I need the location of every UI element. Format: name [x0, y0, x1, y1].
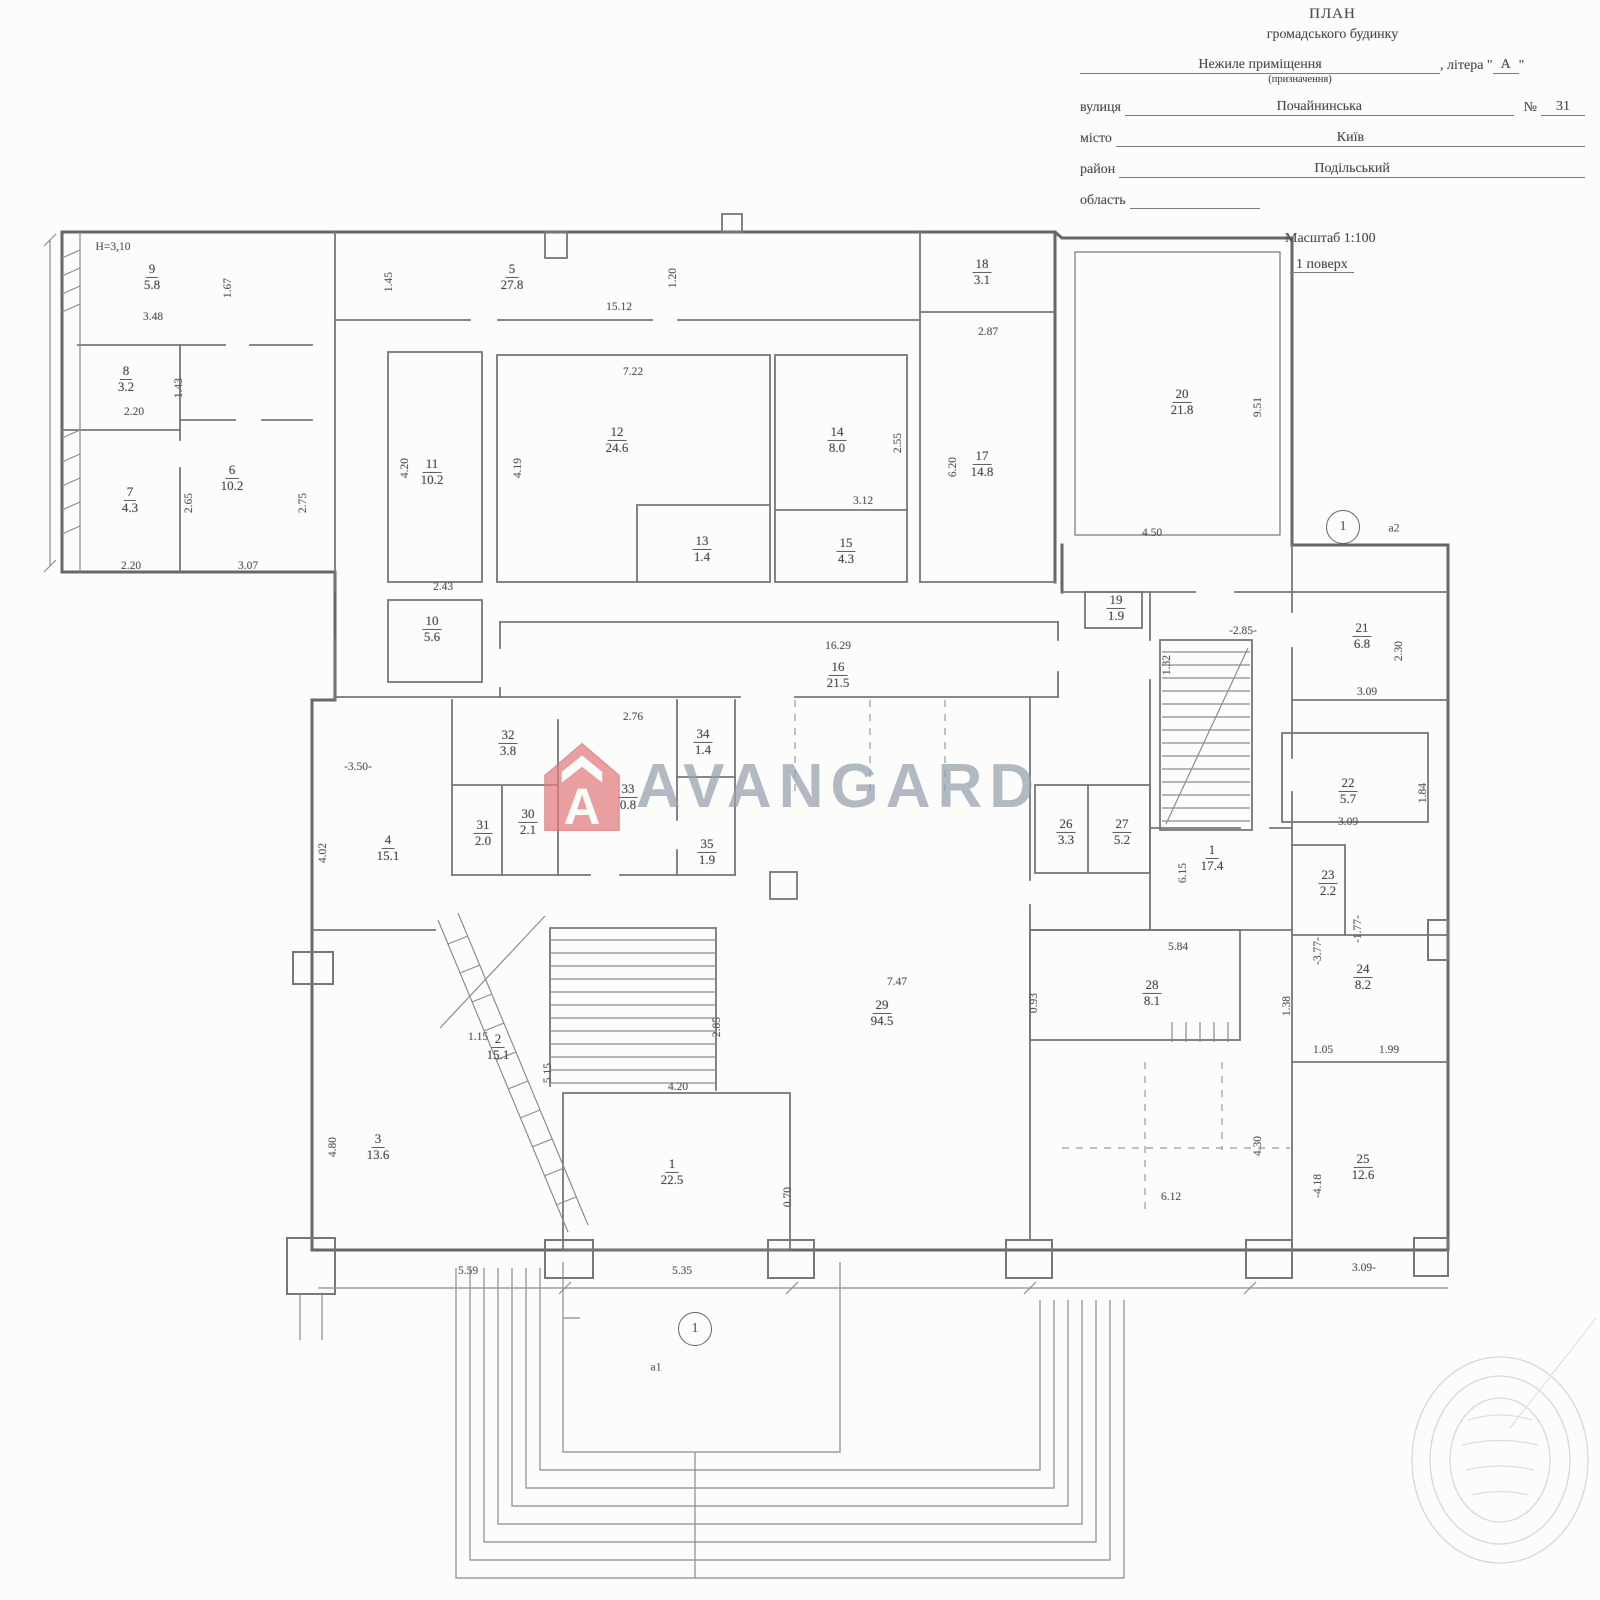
room-label: 1224.6: [606, 425, 629, 455]
dimension-label: 5.84: [1168, 941, 1188, 953]
room-label: 83.2: [118, 364, 134, 394]
number-label: №: [1514, 100, 1541, 116]
room-number: 19: [1107, 593, 1126, 609]
room-label: 117.4: [1201, 843, 1224, 873]
premise-row: Нежиле приміщення , літера " А ": [1080, 57, 1585, 74]
room-label: 2512.6: [1352, 1152, 1375, 1182]
dimension-label: -2.85-: [1229, 625, 1257, 637]
dimension-label: 2.43: [433, 581, 453, 593]
room-area: 0.8: [620, 798, 636, 813]
dimension-label: 6.12: [1161, 1191, 1181, 1203]
room-number: 7: [124, 485, 137, 501]
number-value: 31: [1541, 99, 1585, 116]
room-label: 1714.8: [971, 449, 994, 479]
room-label: 313.6: [367, 1132, 390, 1162]
dimension-label: 2.75: [297, 493, 309, 513]
region-value: [1130, 192, 1260, 209]
dimension-label: 5.15: [542, 1063, 554, 1083]
room-label: 248.2: [1354, 962, 1373, 992]
dimension-label: 1.84: [1417, 783, 1429, 803]
room-number: 17: [973, 449, 992, 465]
room-label: 148.0: [828, 425, 847, 455]
dimension-label: 3.07: [238, 560, 258, 572]
detail-lines: [44, 232, 1448, 1578]
street-value: Почайнинська: [1125, 99, 1514, 116]
room-label: 216.8: [1353, 621, 1372, 651]
room-number: 12: [608, 425, 627, 441]
room-area: 15.1: [487, 1048, 510, 1063]
dimension-label: 5.35: [672, 1265, 692, 1277]
room-label: 263.3: [1057, 817, 1076, 847]
room-label: 610.2: [221, 463, 244, 493]
dimension-label: 4.50: [1142, 527, 1162, 539]
room-number: 33: [619, 782, 638, 798]
room-area: 1.9: [1108, 609, 1124, 624]
room-number: 10: [423, 614, 442, 630]
outer-walls: [62, 232, 1448, 1250]
region-row: область: [1080, 192, 1585, 209]
room-area: 3.2: [118, 380, 134, 395]
room-area: 10.2: [221, 479, 244, 494]
room-area: 5.7: [1340, 792, 1356, 807]
room-area: 14.8: [971, 465, 994, 480]
street-label: вулиця: [1080, 100, 1125, 116]
dimension-label: 1.38: [1281, 996, 1293, 1016]
room-number: 28: [1143, 978, 1162, 994]
room-label: 1621.5: [827, 660, 850, 690]
room-area: 1.4: [694, 550, 710, 565]
letter-post: ": [1519, 58, 1525, 74]
dimension-label: 3.09-: [1352, 1262, 1376, 1274]
dimension-label: 4.02: [317, 843, 329, 863]
room-label: 191.9: [1107, 593, 1126, 623]
dimension-label: 1.15: [468, 1031, 488, 1043]
title-block: ПЛАН громадського будинку Нежиле приміще…: [1080, 6, 1585, 273]
room-label: 2021.8: [1171, 387, 1194, 417]
room-label: 302.1: [519, 807, 538, 837]
room-area: 2.1: [520, 823, 536, 838]
dimension-label: 0.93: [1028, 993, 1040, 1013]
room-number: 30: [519, 807, 538, 823]
room-number: 23: [1319, 868, 1338, 884]
axis-marker: 1: [1326, 510, 1360, 544]
interior-walls: [62, 214, 1448, 1294]
room-area: 22.5: [661, 1173, 684, 1188]
dimension-label: 15.12: [606, 301, 632, 313]
room-area: 12.6: [1352, 1168, 1375, 1183]
dimension-label: 3.48: [143, 311, 163, 323]
room-number: 34: [694, 727, 713, 743]
premise-value: Нежиле приміщення: [1150, 57, 1370, 74]
room-number: 1: [1206, 843, 1219, 859]
dimension-label: 1.45: [383, 272, 395, 292]
premise-note: (призначення): [1155, 74, 1445, 85]
dimension-label: 2.55: [892, 433, 904, 453]
district-label: район: [1080, 162, 1119, 178]
room-number: 35: [698, 837, 717, 853]
room-number: 25: [1354, 1152, 1373, 1168]
axis-label: а2: [1388, 521, 1399, 536]
room-area: 4.3: [838, 552, 854, 567]
plan-subtitle: громадського будинку: [1080, 27, 1585, 43]
dimension-label: 1.43: [173, 378, 185, 398]
scale-note: Масштаб 1:100: [1285, 231, 1585, 247]
room-label: 330.8: [619, 782, 638, 812]
dimension-label: -3.50-: [344, 761, 372, 773]
room-area: 3.8: [500, 744, 516, 759]
dimension-label: 4.20: [399, 458, 411, 478]
room-number: 27: [1113, 817, 1132, 833]
dimension-label: 2.85: [711, 1017, 723, 1037]
dimension-label: 6.15: [1177, 863, 1189, 883]
room-area: 1.9: [699, 853, 715, 868]
room-number: 31: [474, 818, 493, 834]
room-label: 1110.2: [421, 457, 444, 487]
floor-plan-sheet: 95.883.274.3610.2527.81110.21224.6131.41…: [0, 0, 1600, 1600]
room-number: 14: [828, 425, 847, 441]
dimension-label: 3.09: [1338, 816, 1358, 828]
room-label: 341.4: [694, 727, 713, 757]
room-area: 24.6: [606, 441, 629, 456]
room-number: 11: [423, 457, 442, 473]
dimension-label: 2.30: [1393, 641, 1405, 661]
room-number: 5: [506, 262, 519, 278]
room-area: 17.4: [1201, 859, 1224, 874]
dimension-label: 2.76: [623, 711, 643, 723]
dimension-label: 7.47: [887, 976, 907, 988]
axis-marker: 1: [678, 1312, 712, 1346]
room-number: 13: [693, 534, 712, 550]
room-area: 21.8: [1171, 403, 1194, 418]
room-number: 16: [829, 660, 848, 676]
dimension-label: 9.51: [1252, 397, 1264, 417]
room-label: 312.0: [474, 818, 493, 848]
dimension-label: 4.20: [668, 1081, 688, 1093]
plan-title: ПЛАН: [1080, 6, 1585, 23]
room-label: 415.1: [377, 833, 400, 863]
room-area: 8.1: [1144, 994, 1160, 1009]
room-area: 3.3: [1058, 833, 1074, 848]
room-number: 22: [1339, 776, 1358, 792]
room-label: 154.3: [837, 536, 856, 566]
dimension-label: 1.20: [667, 268, 679, 288]
room-area: 3.1: [974, 273, 990, 288]
room-label: 351.9: [698, 837, 717, 867]
street-row: вулиця Почайнинська № 31: [1080, 99, 1585, 116]
dashed-lines: [795, 700, 1290, 1210]
region-label: область: [1080, 193, 1130, 209]
floor-note-text: 1 поверх: [1290, 257, 1354, 273]
room-number: 2: [492, 1032, 505, 1048]
room-label: 323.8: [499, 728, 518, 758]
dimension-label: 1.99: [1379, 1044, 1399, 1056]
dimension-label: 5.59: [458, 1265, 478, 1277]
dimension-label: 2.87: [978, 326, 998, 338]
district-row: район Подільський: [1080, 161, 1585, 178]
room-area: 8.0: [829, 441, 845, 456]
room-label: 288.1: [1143, 978, 1162, 1008]
city-label: місто: [1080, 131, 1116, 147]
dimension-label: 2.65: [183, 493, 195, 513]
axis-label: а1: [650, 1360, 661, 1375]
room-area: 21.5: [827, 676, 850, 691]
dimension-label: 4.19: [512, 458, 524, 478]
room-label: 131.4: [693, 534, 712, 564]
dimension-label: 2.20: [121, 560, 141, 572]
dimension-label: 3.12: [853, 495, 873, 507]
room-label: 215.1: [487, 1032, 510, 1062]
room-number: 3: [372, 1132, 385, 1148]
seal-stamp-icon: [1412, 1318, 1596, 1563]
room-label: 2994.5: [871, 998, 894, 1028]
room-area: 6.8: [1354, 637, 1370, 652]
dimension-label: 1.05: [1313, 1044, 1333, 1056]
room-area: 5.2: [1114, 833, 1130, 848]
room-number: 4: [382, 833, 395, 849]
dimension-label: 3.09: [1357, 686, 1377, 698]
room-label: 225.7: [1339, 776, 1358, 806]
letter-value: А: [1493, 57, 1519, 74]
floor-note: 1 поверх: [1290, 257, 1585, 273]
room-label: 74.3: [122, 485, 138, 515]
room-number: 26: [1057, 817, 1076, 833]
dimension-label: 4.80: [327, 1137, 339, 1157]
room-label: 232.2: [1319, 868, 1338, 898]
dimension-label: 1.32: [1161, 655, 1173, 675]
room-area: 15.1: [377, 849, 400, 864]
room-number: 6: [226, 463, 239, 479]
dimension-label: 1.67: [222, 278, 234, 298]
room-area: 10.2: [421, 473, 444, 488]
room-area: 8.2: [1355, 978, 1371, 993]
dimension-label: 6.20: [947, 457, 959, 477]
room-area: 94.5: [871, 1014, 894, 1029]
dimension-label: -3.77-: [1312, 937, 1324, 965]
dimension-label: 16.29: [825, 640, 851, 652]
room-number: 24: [1354, 962, 1373, 978]
room-area: 2.0: [475, 834, 491, 849]
room-number: 20: [1173, 387, 1192, 403]
district-value: Подільський: [1119, 161, 1585, 178]
room-area: 2.2: [1320, 884, 1336, 899]
room-label: 183.1: [973, 257, 992, 287]
dimension-label: 7.22: [623, 366, 643, 378]
room-area: 5.6: [424, 630, 440, 645]
room-number: 9: [146, 262, 159, 278]
room-label: 105.6: [423, 614, 442, 644]
room-area: 5.8: [144, 278, 160, 293]
room-area: 27.8: [501, 278, 524, 293]
room-label: 527.8: [501, 262, 524, 292]
city-row: місто Київ: [1080, 130, 1585, 147]
room-number: 18: [973, 257, 992, 273]
dimension-label: 0.70: [782, 1187, 794, 1207]
room-number: 29: [873, 998, 892, 1014]
room-number: 8: [120, 364, 133, 380]
dimension-label: -1.77-: [1352, 915, 1364, 943]
dimension-label: -4.18: [1312, 1174, 1324, 1198]
room-area: 13.6: [367, 1148, 390, 1163]
dimension-label: Н=3,10: [96, 241, 131, 253]
room-number: 15: [837, 536, 856, 552]
room-area: 4.3: [122, 501, 138, 516]
room-number: 21: [1353, 621, 1372, 637]
room-label: 122.5: [661, 1157, 684, 1187]
room-number: 32: [499, 728, 518, 744]
room-number: 1: [666, 1157, 679, 1173]
dimension-label: 4.30: [1252, 1136, 1264, 1156]
letter-pre: , літера ": [1440, 58, 1493, 74]
room-area: 1.4: [695, 743, 711, 758]
room-label: 275.2: [1113, 817, 1132, 847]
room-label: 95.8: [144, 262, 160, 292]
dimension-label: 2.20: [124, 406, 144, 418]
city-value: Київ: [1116, 130, 1585, 147]
